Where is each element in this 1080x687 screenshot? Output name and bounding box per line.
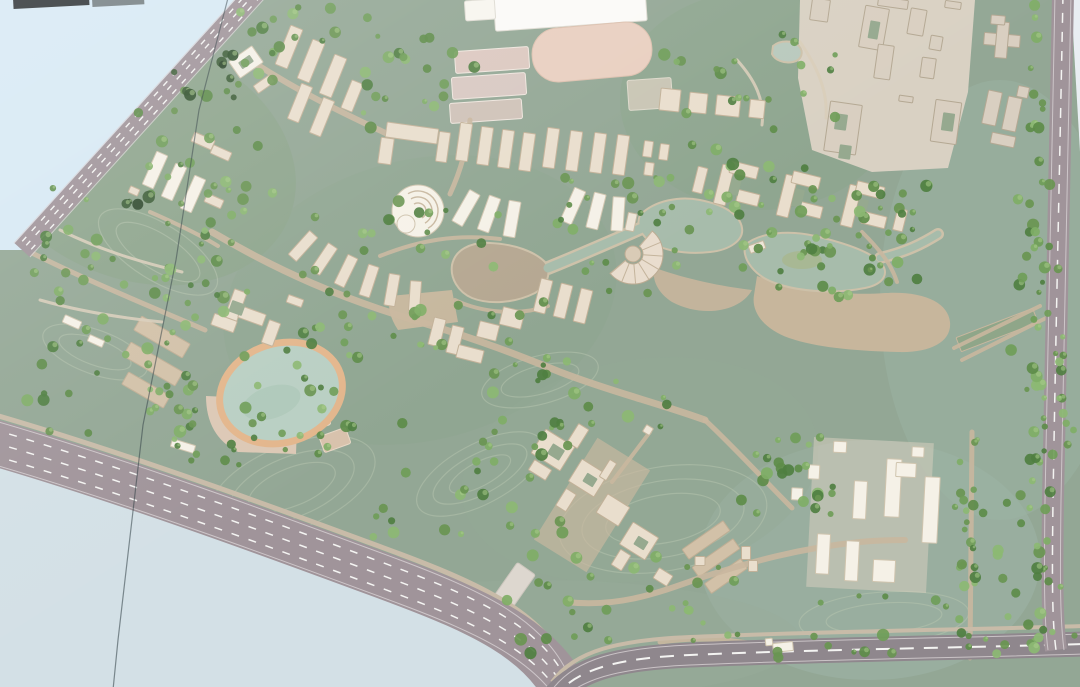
campus-model-photo-canvas xyxy=(0,0,1080,687)
light-wash xyxy=(0,0,1080,687)
campus-model-photo xyxy=(0,0,1080,687)
